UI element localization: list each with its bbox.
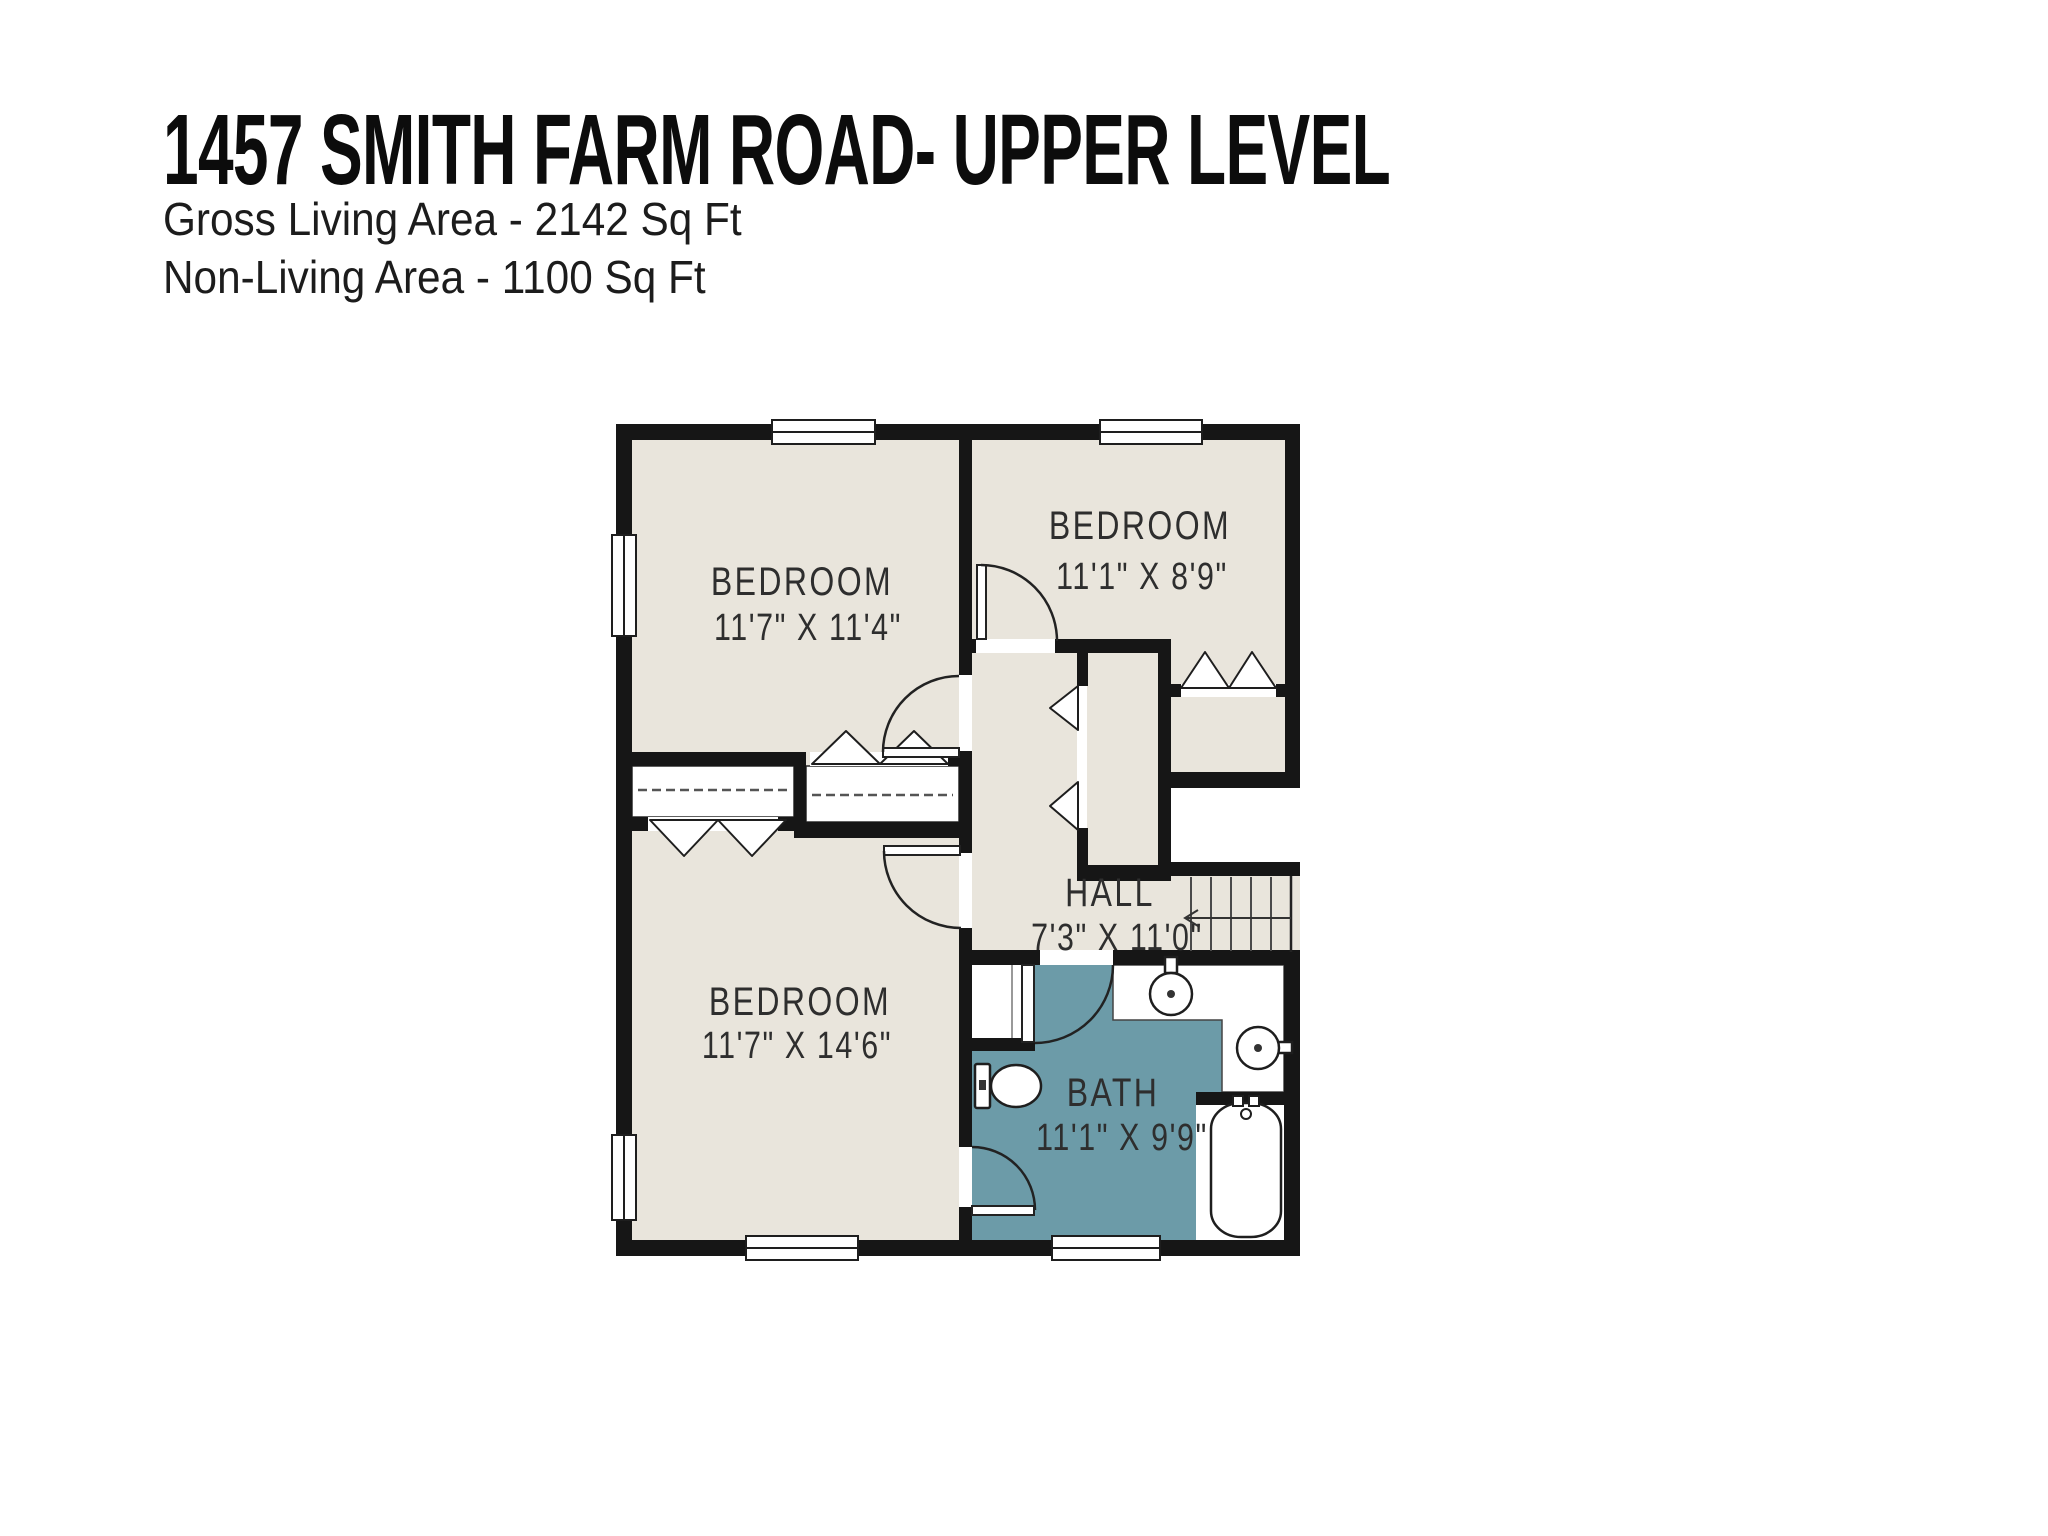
room-label-bedroom-top-right: BEDROOM [1049, 506, 1231, 546]
window [612, 535, 636, 636]
window [772, 420, 875, 444]
room-dims-bedroom-top-right: 11'1" X 8'9" [1056, 558, 1228, 596]
room-label-bedroom-bottom-left: BEDROOM [709, 982, 891, 1022]
room-label-bath: BATH [1067, 1073, 1160, 1113]
room-dims-hall: 7'3" X 11'0" [1031, 919, 1203, 957]
room-dims-bedroom-bottom-left: 11'7" X 14'6" [702, 1027, 892, 1065]
wall-outer-bottom [616, 1240, 1300, 1256]
wall-midcloset-stub-top [1077, 651, 1088, 686]
window [612, 1135, 636, 1220]
closet-left-interior [632, 766, 794, 817]
window [746, 1236, 858, 1260]
wall-midcloset-right [1158, 651, 1171, 878]
window [1100, 420, 1202, 444]
wall-closetband-top [632, 752, 806, 766]
room-label-bedroom-top-left: BEDROOM [711, 562, 893, 602]
wall-midcloset-stub-bottom [1077, 828, 1088, 865]
room-dims-bedroom-top-left: 11'7" X 11'4" [714, 609, 902, 647]
room-dims-bath: 11'1" X 9'9" [1036, 1119, 1208, 1157]
wall-stairs-top [1171, 862, 1300, 876]
wall-bed2closet-bottom [1171, 772, 1300, 788]
wall-center-vertical [959, 440, 972, 1240]
wall-closet-right-bottom [794, 822, 972, 838]
floor-plan-page: 1457 SMITH FARM ROAD- UPPER LEVEL Gross … [0, 0, 2048, 1536]
bathtub-icon [1211, 1096, 1281, 1237]
floor-plan-drawing [0, 0, 2048, 1536]
toilet-icon [975, 1064, 1041, 1108]
wall-outer-right-upper [1285, 424, 1300, 788]
room-label-hall: HALL [1065, 873, 1155, 913]
window [1052, 1236, 1160, 1260]
